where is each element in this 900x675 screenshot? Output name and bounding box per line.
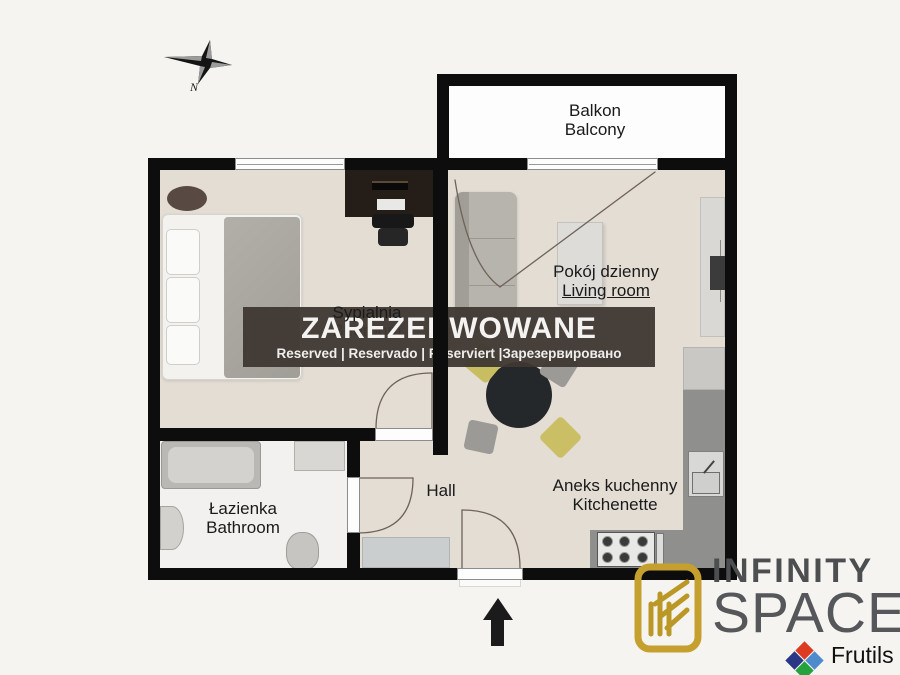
reservation-banner: ZAREZERWOWANE Reserved | Reservado | Res… — [243, 307, 655, 367]
balcony-wall-top — [437, 74, 737, 86]
kitchen-cabinet-box — [683, 347, 725, 390]
entrance-arrow-shaft — [491, 619, 504, 646]
bathroom-wall-lower — [347, 533, 360, 568]
sofa-cushion-seam — [469, 285, 515, 286]
balcony-label-en: Balcony — [565, 120, 625, 139]
bathroom-label-pl: Łazienka — [206, 499, 280, 518]
bathroom-label-en: Bathroom — [206, 518, 280, 537]
infinity-space-logo-icon — [633, 562, 705, 656]
floor-cushion-gray — [463, 419, 499, 455]
balcony-wall-left — [437, 74, 449, 170]
wall-bottom-a — [148, 568, 457, 580]
wall-right — [725, 74, 737, 580]
kitchenette-label-en: Kitchenette — [553, 495, 678, 514]
compass-rose-icon — [160, 22, 244, 100]
balcony-label-pl: Balkon — [565, 101, 625, 120]
bedroom-window — [235, 158, 345, 170]
sofa-cushion-seam — [469, 238, 515, 239]
office-chair-back — [372, 214, 414, 228]
bed-pillow — [166, 229, 200, 275]
desk-paper — [377, 199, 405, 210]
burner-icon — [619, 536, 630, 547]
living-room-label-pl: Pokój dzienny — [553, 262, 659, 281]
burner-icon — [602, 552, 613, 563]
bedroom-door — [375, 428, 433, 441]
living-room-label: Pokój dzienny Living room — [553, 262, 659, 300]
toilet — [286, 532, 319, 570]
bedroom-label-pl: Sypialnia — [333, 303, 402, 322]
bathroom-door — [347, 477, 360, 533]
bathroom-label: Łazienka Bathroom — [206, 499, 280, 537]
hall-label: Hall — [426, 481, 455, 500]
hall-cabinet — [362, 537, 450, 568]
living-room-label-en: Living room — [553, 281, 659, 300]
laptop-icon — [372, 181, 408, 190]
balcony-label: Balkon Balcony — [565, 101, 625, 139]
burner-icon — [637, 536, 648, 547]
bedroom-rug — [167, 186, 207, 211]
burner-icon — [602, 536, 613, 547]
washing-machine — [294, 441, 345, 471]
entrance-arrow-icon — [483, 598, 513, 620]
partition-bedroom-living — [433, 170, 448, 455]
office-chair-seat — [378, 228, 408, 246]
partition-bedroom-hall — [148, 428, 375, 441]
wall-left — [148, 158, 160, 580]
kitchenette-label: Aneks kuchenny Kitchenette — [553, 476, 678, 514]
wall-top-a — [148, 158, 235, 170]
entrance-step — [459, 580, 521, 587]
bathtub-inner — [168, 447, 254, 483]
bed-pillow — [166, 325, 200, 365]
wall-top-c — [658, 158, 737, 170]
bathroom-wall-upper — [347, 441, 360, 477]
reservation-banner-subtitle: Reserved | Reservado | Reserviert |Зарез… — [276, 345, 621, 362]
entrance-door — [457, 568, 523, 580]
kitchenette-label-pl: Aneks kuchenny — [553, 476, 678, 495]
balcony-window-door — [527, 158, 658, 170]
bathroom-sink — [160, 506, 184, 550]
wall-top-b — [345, 158, 527, 170]
bed-pillow — [166, 277, 200, 323]
partner-name: Frutils — [831, 642, 894, 668]
tv-icon — [710, 256, 725, 290]
brand-name-line2: SPACE — [712, 587, 900, 639]
burner-icon — [619, 552, 630, 563]
kitchen-sink-basin — [692, 472, 720, 494]
floor-plan-canvas: Balkon Balcony Sypialnia Bedroom Pokój d… — [0, 0, 900, 675]
compass-north-label: N — [190, 80, 198, 95]
